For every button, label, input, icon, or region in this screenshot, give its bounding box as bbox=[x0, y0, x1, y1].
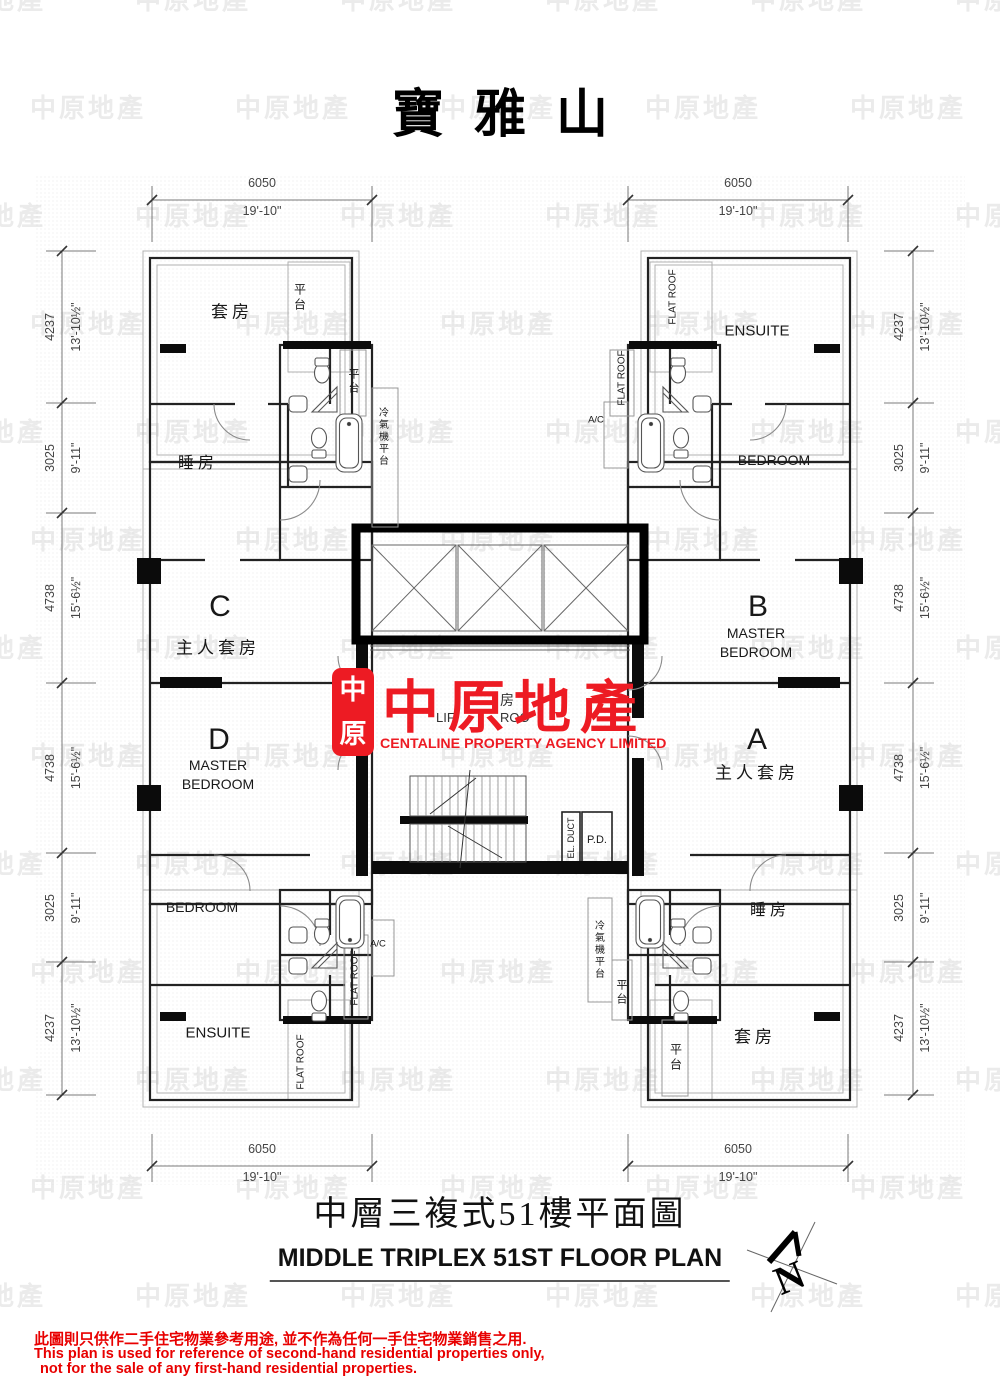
north-label: N bbox=[768, 1251, 812, 1304]
dim-left-5-imperial: 9'-11" bbox=[69, 893, 83, 924]
dim-right-1-metric: 4237 bbox=[892, 313, 906, 341]
label-ac-platform-bottom: 冷氣機平台 bbox=[591, 920, 606, 980]
dim-top-left-imperial: 19'-10" bbox=[152, 204, 372, 218]
seal-char-top: 中 bbox=[340, 677, 367, 704]
room-label-d-flatroof-2: FLAT ROOF bbox=[296, 1034, 307, 1089]
plan-title-chinese: 中層三複式51樓平面圖 bbox=[314, 1186, 687, 1235]
dim-right-2-imperial: 9'-11" bbox=[918, 443, 932, 474]
dim-top-left-metric: 6050 bbox=[152, 176, 372, 190]
dim-right-2-metric: 3025 bbox=[892, 444, 906, 472]
dim-left-4-metric: 4738 bbox=[43, 754, 57, 782]
dim-right-6-imperial: 13'-10½" bbox=[918, 1003, 932, 1052]
room-label-c-master-suite: 主人套房 bbox=[176, 634, 260, 659]
dim-left-1-imperial: 13'-10½" bbox=[69, 302, 83, 351]
dim-left-3-imperial: 15'-6½" bbox=[69, 577, 83, 619]
room-label-a-balcony-1: 平台 bbox=[613, 979, 629, 1007]
dim-bottom-left-imperial: 19'-10" bbox=[152, 1170, 372, 1184]
unit-label-d: D bbox=[208, 723, 230, 757]
unit-label-c: C bbox=[209, 590, 231, 624]
room-label-c-balcony-2: 平台 bbox=[345, 368, 361, 396]
room-label-c-bedroom: 睡房 bbox=[178, 449, 218, 473]
centaline-name-en: CENTALINE PROPERTY AGENCY LIMITED bbox=[380, 736, 662, 752]
dim-right-6-metric: 4237 bbox=[892, 1014, 906, 1042]
room-label-b-ensuite: ENSUITE bbox=[724, 323, 789, 340]
room-label-a-suite: 套房 bbox=[734, 1023, 776, 1048]
floor-plan-page: 中原地產中原地產中原地產中原地產中原地產中原地產中原地產中原地產中原地產中原地產… bbox=[0, 0, 1000, 1377]
building-title: 寶雅山 bbox=[362, 72, 638, 147]
dim-right-4-imperial: 15'-6½" bbox=[918, 747, 932, 789]
dim-top-right-imperial: 19'-10" bbox=[628, 204, 848, 218]
plan-title-english: MIDDLE TRIPLEX 51ST FLOOR PLAN bbox=[270, 1244, 730, 1282]
room-label-d-ensuite: ENSUITE bbox=[185, 1025, 250, 1042]
centaline-name-cn: 中原地產 bbox=[382, 662, 662, 744]
room-label-d-master-1: MASTER bbox=[189, 757, 247, 773]
unit-label-b: B bbox=[748, 590, 768, 624]
room-label-d-flatroof-1: FLAT ROOF bbox=[350, 950, 361, 1005]
disclaimer-english-2: not for the sale of any first-hand resid… bbox=[40, 1361, 417, 1377]
label-el-duct: EL. DUCT bbox=[566, 817, 576, 858]
label-pd: P.D. bbox=[587, 834, 607, 846]
room-label-b-flatroof-2: FLAT ROOF bbox=[617, 350, 628, 405]
dim-bottom-right-imperial: 19'-10" bbox=[628, 1170, 848, 1184]
lift-shafts bbox=[356, 528, 644, 650]
dim-left-1-metric: 4237 bbox=[43, 313, 57, 341]
dim-left-5-metric: 3025 bbox=[43, 894, 57, 922]
dim-right-1-imperial: 13'-10½" bbox=[918, 302, 932, 351]
dim-bottom-right-metric: 6050 bbox=[628, 1142, 848, 1156]
seal-char-bottom: 原 bbox=[340, 721, 367, 748]
label-ac-platform-top: 冷氣機平台 bbox=[375, 407, 390, 467]
room-label-b-master-1: MASTER bbox=[727, 625, 785, 641]
room-label-b-master-2: BEDROOM bbox=[720, 644, 792, 660]
room-label-d-master-2: BEDROOM bbox=[182, 776, 254, 792]
dim-right-3-metric: 4738 bbox=[892, 584, 906, 612]
room-label-b-bedroom: BEDROOM bbox=[738, 452, 810, 468]
north-arrow: N bbox=[735, 1210, 895, 1340]
dim-left-2-metric: 3025 bbox=[43, 444, 57, 472]
dim-right-4-metric: 4738 bbox=[892, 754, 906, 782]
room-label-a-balcony-2: 平台 bbox=[668, 1043, 685, 1073]
label-ac-top: A/C bbox=[588, 415, 604, 426]
unit-label-a: A bbox=[747, 723, 767, 757]
dim-bottom-left-metric: 6050 bbox=[152, 1142, 372, 1156]
dim-left-3-metric: 4738 bbox=[43, 584, 57, 612]
dim-top-right-metric: 6050 bbox=[628, 176, 848, 190]
room-label-d-bedroom: BEDROOM bbox=[166, 899, 238, 915]
centaline-logo: 中 原 中原地產 CENTALINE PROPERTY AGENCY LIMIT… bbox=[332, 666, 662, 761]
disclaimer-english-1: This plan is used for reference of secon… bbox=[34, 1346, 545, 1362]
dim-right-3-imperial: 15'-6½" bbox=[918, 577, 932, 619]
dim-left-6-imperial: 13'-10½" bbox=[69, 1003, 83, 1052]
dim-right-5-metric: 3025 bbox=[892, 894, 906, 922]
room-label-a-master-suite: 主人套房 bbox=[715, 759, 799, 784]
room-label-a-bedroom: 睡房 bbox=[750, 896, 790, 920]
label-ac-bottom: A/C bbox=[370, 939, 386, 950]
dim-left-4-imperial: 15'-6½" bbox=[69, 747, 83, 789]
room-label-c-suite: 套房 bbox=[211, 298, 253, 323]
room-label-c-balcony-1: 平台 bbox=[292, 283, 309, 313]
dim-right-5-imperial: 9'-11" bbox=[918, 893, 932, 924]
centaline-seal-icon: 中 原 bbox=[332, 668, 374, 756]
room-label-b-flatroof-1: FLAT ROOF bbox=[668, 269, 679, 324]
dim-left-2-imperial: 9'-11" bbox=[69, 443, 83, 474]
dim-left-6-metric: 4237 bbox=[43, 1014, 57, 1042]
